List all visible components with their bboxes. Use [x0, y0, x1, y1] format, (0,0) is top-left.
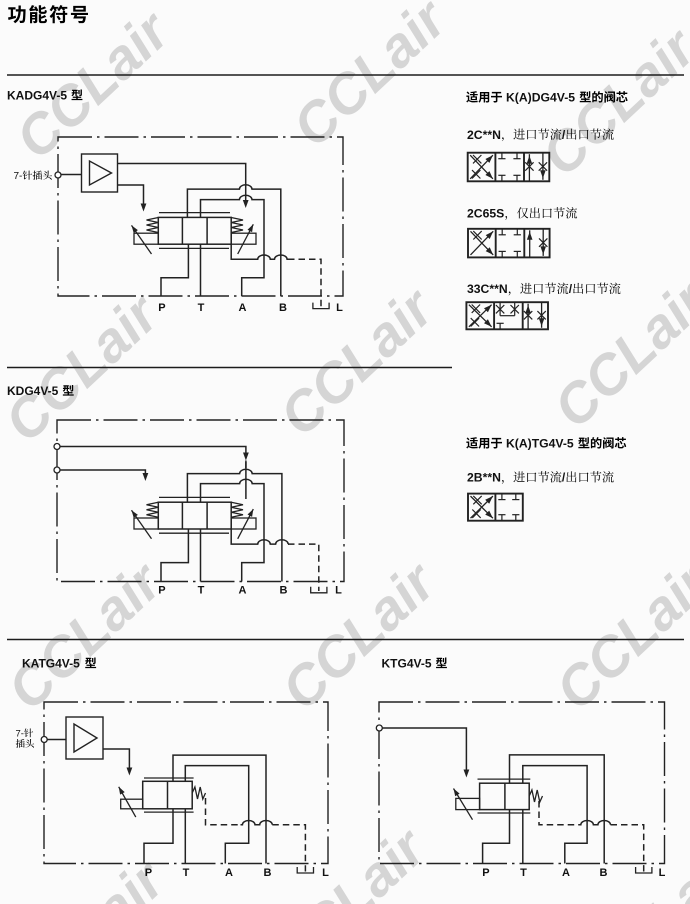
- svg-text:B: B: [600, 867, 608, 879]
- svg-text:P: P: [158, 585, 165, 597]
- svg-text:T: T: [198, 585, 205, 597]
- svg-text:P: P: [158, 302, 165, 314]
- svg-text:2C**N: 2C**N: [467, 128, 501, 142]
- svg-text:7-: 7-: [16, 729, 24, 740]
- svg-text:A: A: [239, 585, 247, 597]
- svg-text:T: T: [520, 867, 527, 879]
- svg-text:2B**N: 2B**N: [467, 471, 501, 485]
- svg-text:33C**N: 33C**N: [467, 282, 508, 296]
- svg-text:B: B: [279, 302, 287, 314]
- svg-text:K(A)DG4V-5: K(A)DG4V-5: [506, 91, 575, 105]
- svg-text:P: P: [145, 867, 152, 879]
- svg-text:B: B: [280, 585, 288, 597]
- svg-text:L: L: [322, 867, 329, 879]
- svg-text:L: L: [659, 867, 666, 879]
- svg-text:KTG4V-5: KTG4V-5: [382, 657, 432, 671]
- svg-text:T: T: [198, 302, 205, 314]
- svg-text:KADG4V-5: KADG4V-5: [7, 89, 67, 103]
- svg-text:2C65S: 2C65S: [467, 207, 504, 221]
- svg-text:A: A: [239, 302, 247, 314]
- svg-text:A: A: [562, 867, 570, 879]
- svg-text:KDG4V-5: KDG4V-5: [7, 384, 59, 398]
- svg-text:P: P: [482, 867, 489, 879]
- svg-text:T: T: [183, 867, 190, 879]
- svg-text:B: B: [264, 867, 272, 879]
- svg-text:KATG4V-5: KATG4V-5: [22, 657, 80, 671]
- svg-text:L: L: [335, 585, 342, 597]
- svg-text:7-: 7-: [14, 171, 23, 182]
- svg-text:A: A: [225, 867, 233, 879]
- svg-text:L: L: [336, 302, 343, 314]
- svg-text:K(A)TG4V-5: K(A)TG4V-5: [506, 437, 574, 451]
